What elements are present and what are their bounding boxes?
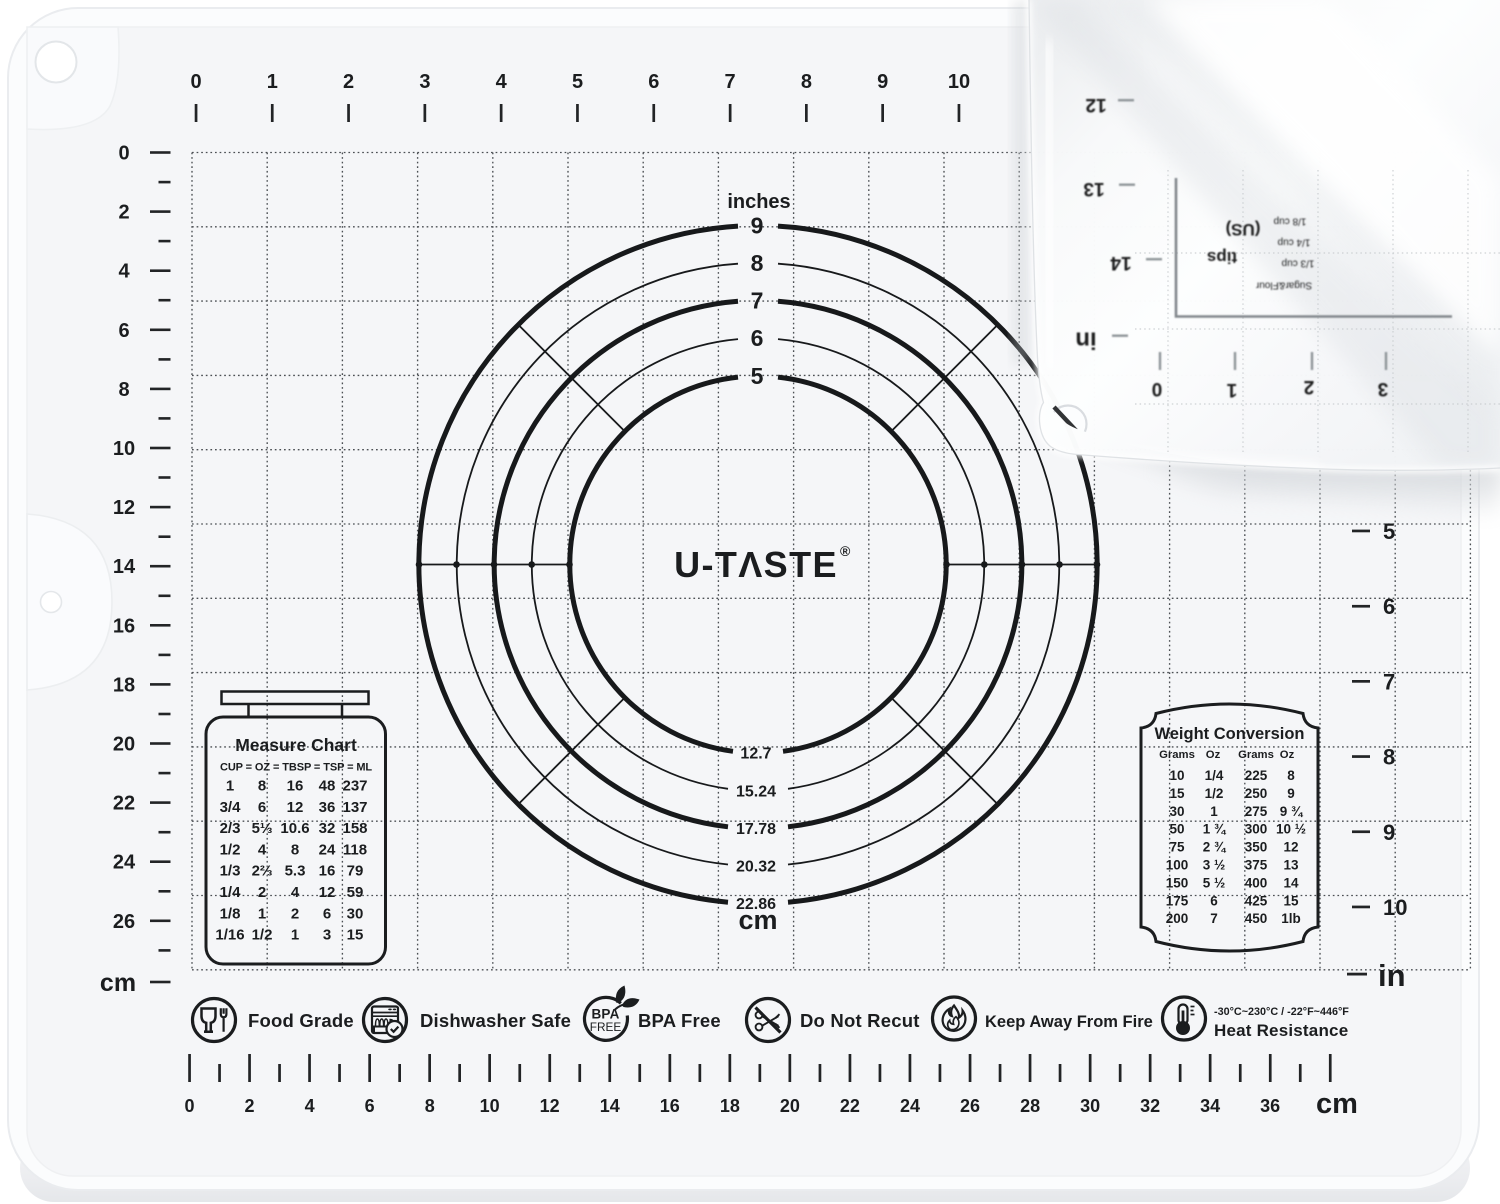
svg-text:3: 3 (419, 71, 430, 93)
svg-text:28: 28 (1020, 1096, 1040, 1116)
svg-text:®: ® (840, 543, 851, 559)
svg-text:24: 24 (900, 1096, 920, 1116)
svg-text:225: 225 (1245, 768, 1268, 783)
svg-text:1/2: 1/2 (1205, 786, 1224, 801)
svg-text:20: 20 (780, 1096, 800, 1116)
svg-text:237: 237 (342, 778, 367, 795)
svg-text:10: 10 (113, 438, 135, 460)
svg-text:13: 13 (1283, 858, 1299, 873)
svg-text:1: 1 (226, 778, 234, 795)
svg-text:14: 14 (1283, 875, 1299, 890)
svg-text:BPA Free: BPA Free (638, 1010, 721, 1031)
svg-text:tips: tips (1207, 248, 1237, 267)
svg-text:1 ¾: 1 ¾ (1203, 822, 1227, 837)
svg-text:10: 10 (1383, 895, 1407, 920)
svg-text:18: 18 (720, 1096, 740, 1116)
svg-text:12: 12 (1283, 840, 1298, 855)
svg-text:15.24: 15.24 (736, 783, 776, 800)
svg-text:175: 175 (1166, 893, 1189, 908)
svg-text:Measure Chart: Measure Chart (235, 735, 357, 755)
svg-text:1/8: 1/8 (220, 905, 241, 922)
svg-text:2: 2 (1304, 376, 1315, 397)
svg-text:Food Grade: Food Grade (248, 1010, 354, 1031)
svg-text:10: 10 (948, 71, 970, 93)
svg-text:2: 2 (343, 71, 354, 93)
svg-text:425: 425 (1245, 893, 1268, 908)
svg-text:1/8 cup: 1/8 cup (1273, 215, 1306, 226)
svg-text:9: 9 (877, 71, 888, 93)
svg-text:24: 24 (319, 841, 336, 858)
svg-text:Heat Resistance: Heat Resistance (1214, 1021, 1348, 1040)
svg-text:100: 100 (1166, 858, 1189, 873)
svg-text:cm: cm (100, 969, 136, 997)
svg-text:400: 400 (1245, 875, 1268, 890)
svg-text:59: 59 (347, 884, 364, 901)
svg-text:9: 9 (1383, 820, 1395, 845)
svg-text:8: 8 (751, 250, 764, 276)
svg-text:30: 30 (1080, 1096, 1100, 1116)
svg-text:1: 1 (267, 71, 278, 93)
svg-text:16: 16 (113, 615, 135, 637)
svg-text:3: 3 (1378, 378, 1389, 399)
svg-text:22: 22 (113, 793, 135, 815)
svg-text:7: 7 (1210, 911, 1218, 926)
svg-text:1/4: 1/4 (220, 884, 242, 901)
svg-text:50: 50 (1169, 822, 1184, 837)
svg-text:158: 158 (342, 820, 367, 837)
svg-text:1: 1 (1210, 804, 1218, 819)
svg-text:7: 7 (1383, 669, 1395, 694)
svg-text:3 ½: 3 ½ (1203, 858, 1226, 873)
svg-text:36: 36 (1260, 1096, 1280, 1116)
svg-text:12: 12 (540, 1096, 560, 1116)
svg-text:5⅓: 5⅓ (252, 820, 273, 837)
svg-text:375: 375 (1245, 858, 1268, 873)
svg-text:in: in (1075, 326, 1096, 353)
svg-text:36: 36 (319, 799, 336, 816)
svg-text:U-TΛSTE: U-TΛSTE (674, 544, 838, 585)
svg-text:22: 22 (840, 1096, 860, 1116)
svg-text:6: 6 (258, 799, 266, 816)
svg-text:300: 300 (1245, 822, 1268, 837)
svg-text:4: 4 (496, 71, 508, 93)
svg-text:24: 24 (113, 852, 136, 874)
svg-text:(US): (US) (1226, 220, 1261, 239)
svg-text:6: 6 (751, 325, 764, 351)
svg-text:450: 450 (1245, 911, 1268, 926)
svg-text:inches: inches (727, 191, 790, 213)
svg-text:16: 16 (319, 863, 336, 880)
svg-text:16: 16 (660, 1096, 680, 1116)
svg-text:Oz: Oz (1206, 749, 1221, 761)
svg-text:4: 4 (258, 841, 267, 858)
svg-text:1: 1 (258, 905, 266, 922)
svg-text:5.3: 5.3 (285, 863, 306, 880)
svg-text:2: 2 (291, 905, 299, 922)
svg-text:in: in (1378, 958, 1406, 993)
svg-text:9: 9 (751, 213, 764, 239)
svg-text:3: 3 (323, 927, 331, 944)
svg-text:26: 26 (960, 1096, 980, 1116)
svg-text:0: 0 (190, 71, 201, 93)
svg-text:0: 0 (184, 1096, 194, 1116)
svg-text:10 ½: 10 ½ (1276, 822, 1306, 837)
svg-text:cm: cm (738, 905, 777, 935)
svg-text:20.32: 20.32 (736, 859, 776, 876)
svg-text:14: 14 (1110, 252, 1132, 273)
svg-text:Grams: Grams (1159, 749, 1195, 761)
svg-text:12: 12 (113, 497, 135, 519)
svg-text:13: 13 (1083, 178, 1104, 199)
svg-text:75: 75 (1169, 840, 1185, 855)
svg-text:17.78: 17.78 (736, 821, 776, 838)
svg-text:4: 4 (305, 1096, 315, 1116)
svg-text:26: 26 (113, 911, 135, 933)
svg-text:8: 8 (1383, 745, 1395, 770)
svg-text:Oz: Oz (1280, 749, 1295, 761)
svg-text:6: 6 (1210, 893, 1218, 908)
svg-text:8: 8 (801, 71, 812, 93)
svg-text:1: 1 (1226, 379, 1237, 400)
svg-text:4: 4 (118, 261, 130, 283)
svg-text:-30°C~230°C / -22°F~446°F: -30°C~230°C / -22°F~446°F (1214, 1006, 1349, 1018)
svg-text:0: 0 (118, 143, 129, 165)
svg-text:350: 350 (1245, 840, 1268, 855)
svg-text:Keep Away From Fire: Keep Away From Fire (985, 1013, 1153, 1031)
svg-text:34: 34 (1200, 1096, 1220, 1116)
svg-text:275: 275 (1245, 804, 1268, 819)
svg-text:12: 12 (287, 799, 304, 816)
svg-text:118: 118 (343, 841, 367, 858)
svg-text:10: 10 (1169, 768, 1184, 783)
svg-text:12: 12 (1085, 94, 1106, 115)
svg-text:16: 16 (287, 778, 304, 795)
svg-text:5: 5 (1383, 519, 1395, 544)
svg-text:20: 20 (113, 734, 135, 756)
svg-text:30: 30 (1169, 804, 1184, 819)
svg-text:8: 8 (1287, 768, 1295, 783)
svg-text:32: 32 (1140, 1096, 1160, 1116)
svg-text:1/16: 1/16 (215, 927, 244, 944)
svg-text:30: 30 (347, 905, 364, 922)
svg-text:7: 7 (725, 71, 736, 93)
svg-text:8: 8 (425, 1096, 435, 1116)
svg-text:48: 48 (319, 778, 336, 795)
svg-text:250: 250 (1245, 786, 1268, 801)
svg-text:2: 2 (258, 884, 266, 901)
svg-text:2⅔: 2⅔ (252, 863, 273, 880)
svg-text:15: 15 (347, 927, 364, 944)
svg-text:5: 5 (751, 363, 764, 389)
svg-text:10.6: 10.6 (280, 820, 309, 837)
svg-text:0: 0 (1152, 378, 1163, 399)
svg-text:Dishwasher Safe: Dishwasher Safe (420, 1010, 571, 1031)
svg-text:2: 2 (244, 1096, 254, 1116)
svg-text:6: 6 (648, 71, 659, 93)
svg-text:2: 2 (118, 202, 129, 224)
svg-text:1/3: 1/3 (220, 863, 241, 880)
svg-text:CUP = OZ = TBSP = TSP = ML: CUP = OZ = TBSP = TSP = ML (220, 762, 372, 774)
svg-text:2 ¾: 2 ¾ (1203, 840, 1227, 855)
svg-text:6: 6 (118, 320, 129, 342)
svg-text:12: 12 (319, 884, 336, 901)
svg-text:9: 9 (1287, 786, 1295, 801)
svg-text:150: 150 (1166, 875, 1189, 890)
svg-text:1/2: 1/2 (252, 927, 273, 944)
svg-text:1/2: 1/2 (220, 841, 241, 858)
svg-text:Weight Conversion: Weight Conversion (1154, 725, 1304, 743)
svg-text:1/4 cup: 1/4 cup (1277, 236, 1310, 247)
svg-text:cm: cm (1316, 1088, 1358, 1120)
svg-text:1: 1 (291, 927, 299, 944)
svg-text:5: 5 (572, 71, 583, 93)
svg-text:Grams: Grams (1238, 749, 1274, 761)
svg-text:12.7: 12.7 (740, 746, 771, 763)
svg-text:FREE: FREE (590, 1020, 622, 1034)
svg-text:79: 79 (347, 863, 364, 880)
svg-text:8: 8 (258, 778, 266, 795)
svg-text:14: 14 (600, 1096, 620, 1116)
svg-text:32: 32 (319, 820, 336, 837)
svg-text:137: 137 (342, 799, 367, 816)
svg-text:1/4: 1/4 (1205, 768, 1224, 783)
svg-text:6: 6 (323, 905, 331, 922)
svg-text:8: 8 (118, 379, 129, 401)
svg-text:1/3 cup: 1/3 cup (1281, 257, 1314, 268)
svg-text:3/4: 3/4 (220, 799, 242, 816)
svg-text:18: 18 (113, 674, 135, 696)
svg-text:Do Not Recut: Do Not Recut (800, 1010, 920, 1031)
svg-text:15: 15 (1169, 786, 1185, 801)
svg-text:1lb: 1lb (1281, 911, 1301, 926)
svg-text:2/3: 2/3 (220, 820, 241, 837)
svg-text:7: 7 (751, 288, 764, 314)
svg-text:10: 10 (480, 1096, 500, 1116)
svg-text:5 ½: 5 ½ (1203, 875, 1226, 890)
svg-text:Sugar&Flour: Sugar&Flour (1255, 279, 1312, 290)
svg-text:14: 14 (113, 556, 136, 578)
svg-text:6: 6 (365, 1096, 375, 1116)
svg-text:9 ¾: 9 ¾ (1280, 804, 1304, 819)
svg-text:4: 4 (291, 884, 300, 901)
svg-text:15: 15 (1283, 893, 1299, 908)
svg-text:6: 6 (1383, 594, 1395, 619)
svg-text:200: 200 (1166, 911, 1189, 926)
svg-text:8: 8 (291, 841, 299, 858)
